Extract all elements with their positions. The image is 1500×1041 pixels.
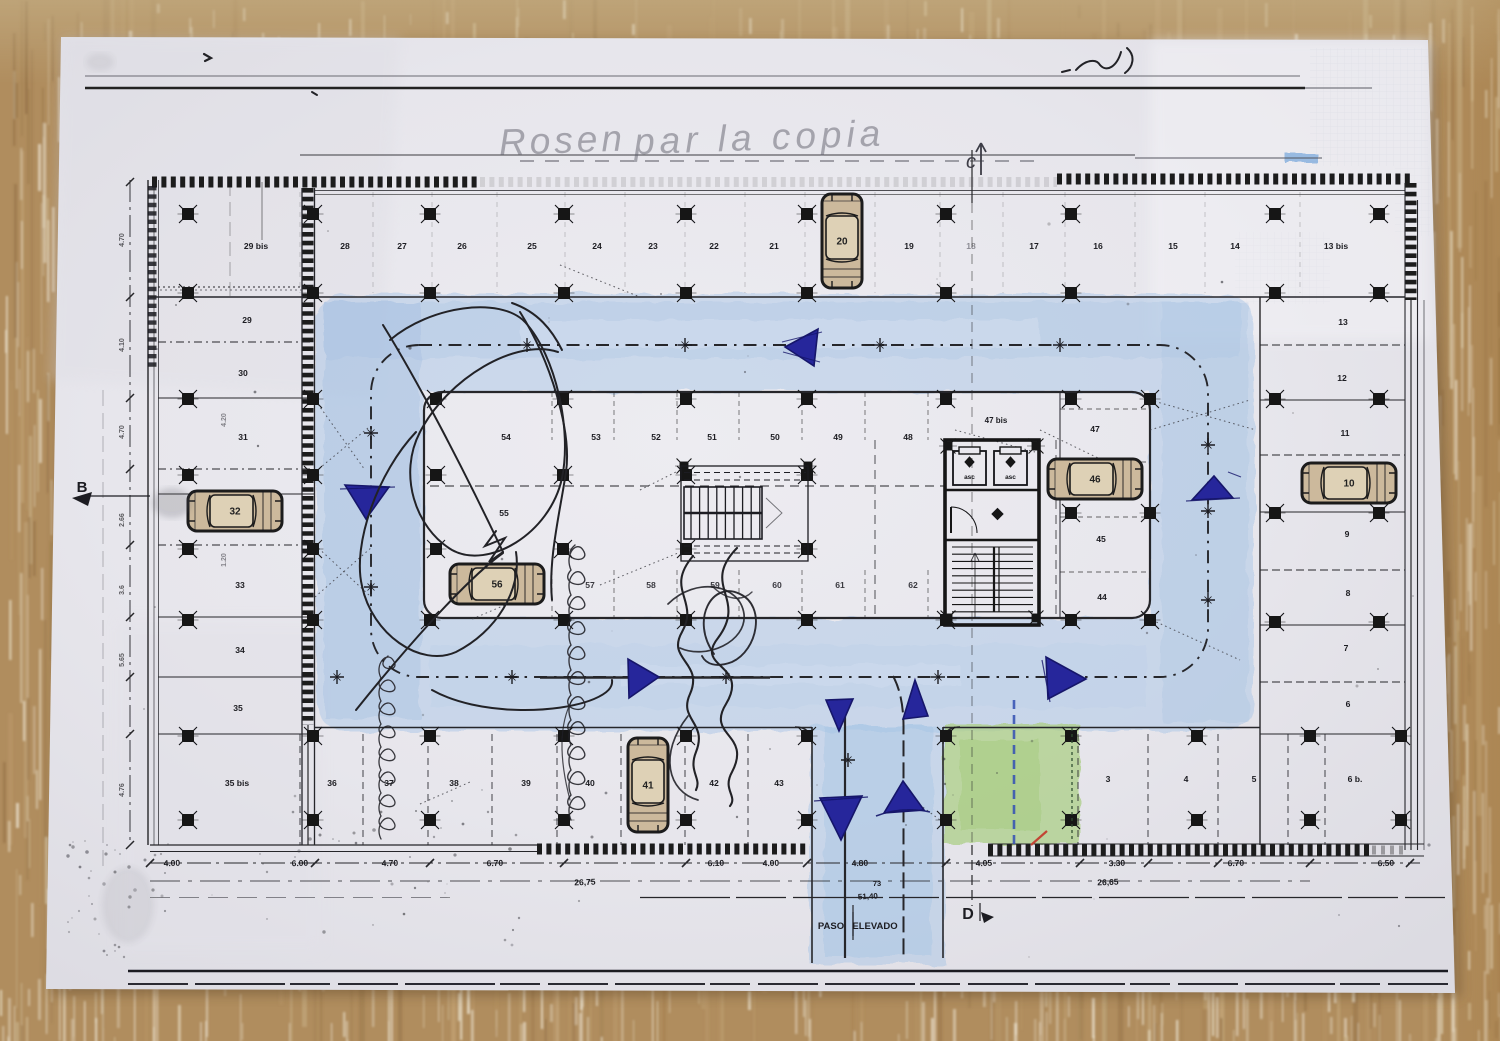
svg-text:16: 16 — [1093, 241, 1103, 251]
svg-text:9: 9 — [1345, 529, 1350, 539]
svg-text:4.20: 4.20 — [221, 413, 228, 427]
svg-text:35 bis: 35 bis — [225, 778, 250, 788]
svg-text:29: 29 — [242, 315, 252, 325]
svg-text:34: 34 — [235, 645, 245, 655]
svg-text:24: 24 — [592, 241, 602, 251]
svg-text:46: 46 — [1089, 475, 1101, 486]
svg-text:10: 10 — [1343, 479, 1355, 490]
svg-text:27: 27 — [397, 241, 407, 251]
svg-text:4.00: 4.00 — [163, 858, 180, 869]
svg-text:5: 5 — [1252, 774, 1257, 784]
svg-text:26: 26 — [457, 241, 467, 251]
svg-text:4.70: 4.70 — [381, 858, 398, 869]
svg-text:26,65: 26,65 — [1097, 877, 1119, 888]
svg-text:ELEVADO: ELEVADO — [852, 921, 897, 932]
svg-text:6 b.: 6 b. — [1348, 774, 1363, 784]
svg-text:D: D — [962, 906, 974, 923]
svg-text:51,40: 51,40 — [858, 891, 879, 901]
svg-text:20: 20 — [836, 237, 848, 248]
svg-text:4.76: 4.76 — [119, 783, 126, 797]
svg-text:47 bis: 47 bis — [985, 416, 1008, 425]
svg-text:22: 22 — [709, 241, 719, 251]
svg-text:38: 38 — [449, 778, 459, 788]
svg-text:5.65: 5.65 — [119, 653, 126, 667]
svg-text:21: 21 — [769, 241, 779, 251]
svg-text:14: 14 — [1230, 241, 1240, 251]
svg-text:45: 45 — [1096, 534, 1106, 544]
svg-text:13: 13 — [1338, 317, 1348, 327]
svg-text:49: 49 — [833, 432, 843, 442]
svg-text:33: 33 — [235, 580, 245, 590]
svg-text:4.00: 4.00 — [762, 858, 779, 869]
svg-text:55: 55 — [499, 508, 509, 518]
svg-text:3.6: 3.6 — [119, 585, 126, 595]
svg-text:c: c — [966, 151, 976, 173]
svg-text:12: 12 — [1337, 373, 1347, 383]
svg-text:53: 53 — [591, 432, 601, 442]
svg-text:6.00: 6.00 — [291, 858, 308, 869]
svg-text:7: 7 — [1344, 643, 1349, 653]
svg-text:4: 4 — [1184, 774, 1189, 784]
svg-text:13 bis: 13 bis — [1324, 241, 1349, 251]
svg-text:6.70: 6.70 — [1227, 858, 1244, 869]
svg-text:PASO: PASO — [818, 921, 844, 932]
svg-text:56: 56 — [491, 580, 503, 591]
svg-text:8: 8 — [1346, 588, 1351, 598]
svg-text:61: 61 — [835, 580, 845, 590]
svg-text:3.30: 3.30 — [1108, 858, 1125, 869]
svg-text:48: 48 — [903, 432, 913, 442]
svg-text:19: 19 — [904, 241, 914, 251]
svg-text:57: 57 — [585, 580, 595, 590]
svg-text:6.10: 6.10 — [707, 858, 724, 869]
svg-text:1.20: 1.20 — [221, 553, 228, 567]
svg-text:asc: asc — [1005, 474, 1016, 481]
svg-text:29 bis: 29 bis — [244, 241, 269, 251]
svg-text:B: B — [77, 479, 88, 496]
svg-text:40: 40 — [585, 778, 595, 788]
svg-text:44: 44 — [1097, 592, 1107, 602]
svg-text:4.05: 4.05 — [975, 858, 992, 869]
svg-text:54: 54 — [501, 432, 511, 442]
svg-text:36: 36 — [327, 778, 337, 788]
svg-text:23: 23 — [648, 241, 658, 251]
svg-text:18: 18 — [966, 241, 976, 251]
svg-text:50: 50 — [770, 432, 780, 442]
svg-text:30: 30 — [238, 368, 248, 378]
svg-text:47: 47 — [1090, 424, 1100, 434]
svg-text:26,75: 26,75 — [574, 877, 596, 888]
svg-text:3: 3 — [1106, 774, 1111, 784]
svg-text:43: 43 — [774, 778, 784, 788]
svg-text:73: 73 — [873, 879, 881, 888]
svg-text:41: 41 — [642, 781, 654, 792]
svg-text:28: 28 — [340, 241, 350, 251]
svg-text:4.70: 4.70 — [119, 233, 126, 247]
svg-text:4.10: 4.10 — [119, 338, 126, 352]
svg-text:62: 62 — [908, 580, 918, 590]
svg-text:32: 32 — [229, 507, 241, 518]
svg-text:6.70: 6.70 — [486, 858, 503, 869]
svg-text:42: 42 — [709, 778, 719, 788]
svg-text:15: 15 — [1168, 241, 1178, 251]
svg-text:58: 58 — [646, 580, 656, 590]
svg-text:52: 52 — [651, 432, 661, 442]
svg-text:31: 31 — [238, 432, 248, 442]
svg-text:asc: asc — [964, 474, 975, 481]
svg-text:51: 51 — [707, 432, 717, 442]
svg-text:17: 17 — [1029, 241, 1039, 251]
svg-text:2.66: 2.66 — [119, 513, 126, 527]
svg-text:4.80: 4.80 — [851, 858, 868, 869]
svg-text:11: 11 — [1340, 428, 1349, 438]
svg-text:39: 39 — [521, 778, 531, 788]
svg-text:Rosen: Rosen — [498, 118, 626, 163]
svg-text:25: 25 — [527, 241, 537, 251]
svg-text:4.70: 4.70 — [119, 425, 126, 439]
svg-text:35: 35 — [233, 703, 243, 713]
svg-text:60: 60 — [772, 580, 782, 590]
svg-text:6.50: 6.50 — [1377, 858, 1394, 869]
svg-text:6: 6 — [1346, 699, 1351, 709]
